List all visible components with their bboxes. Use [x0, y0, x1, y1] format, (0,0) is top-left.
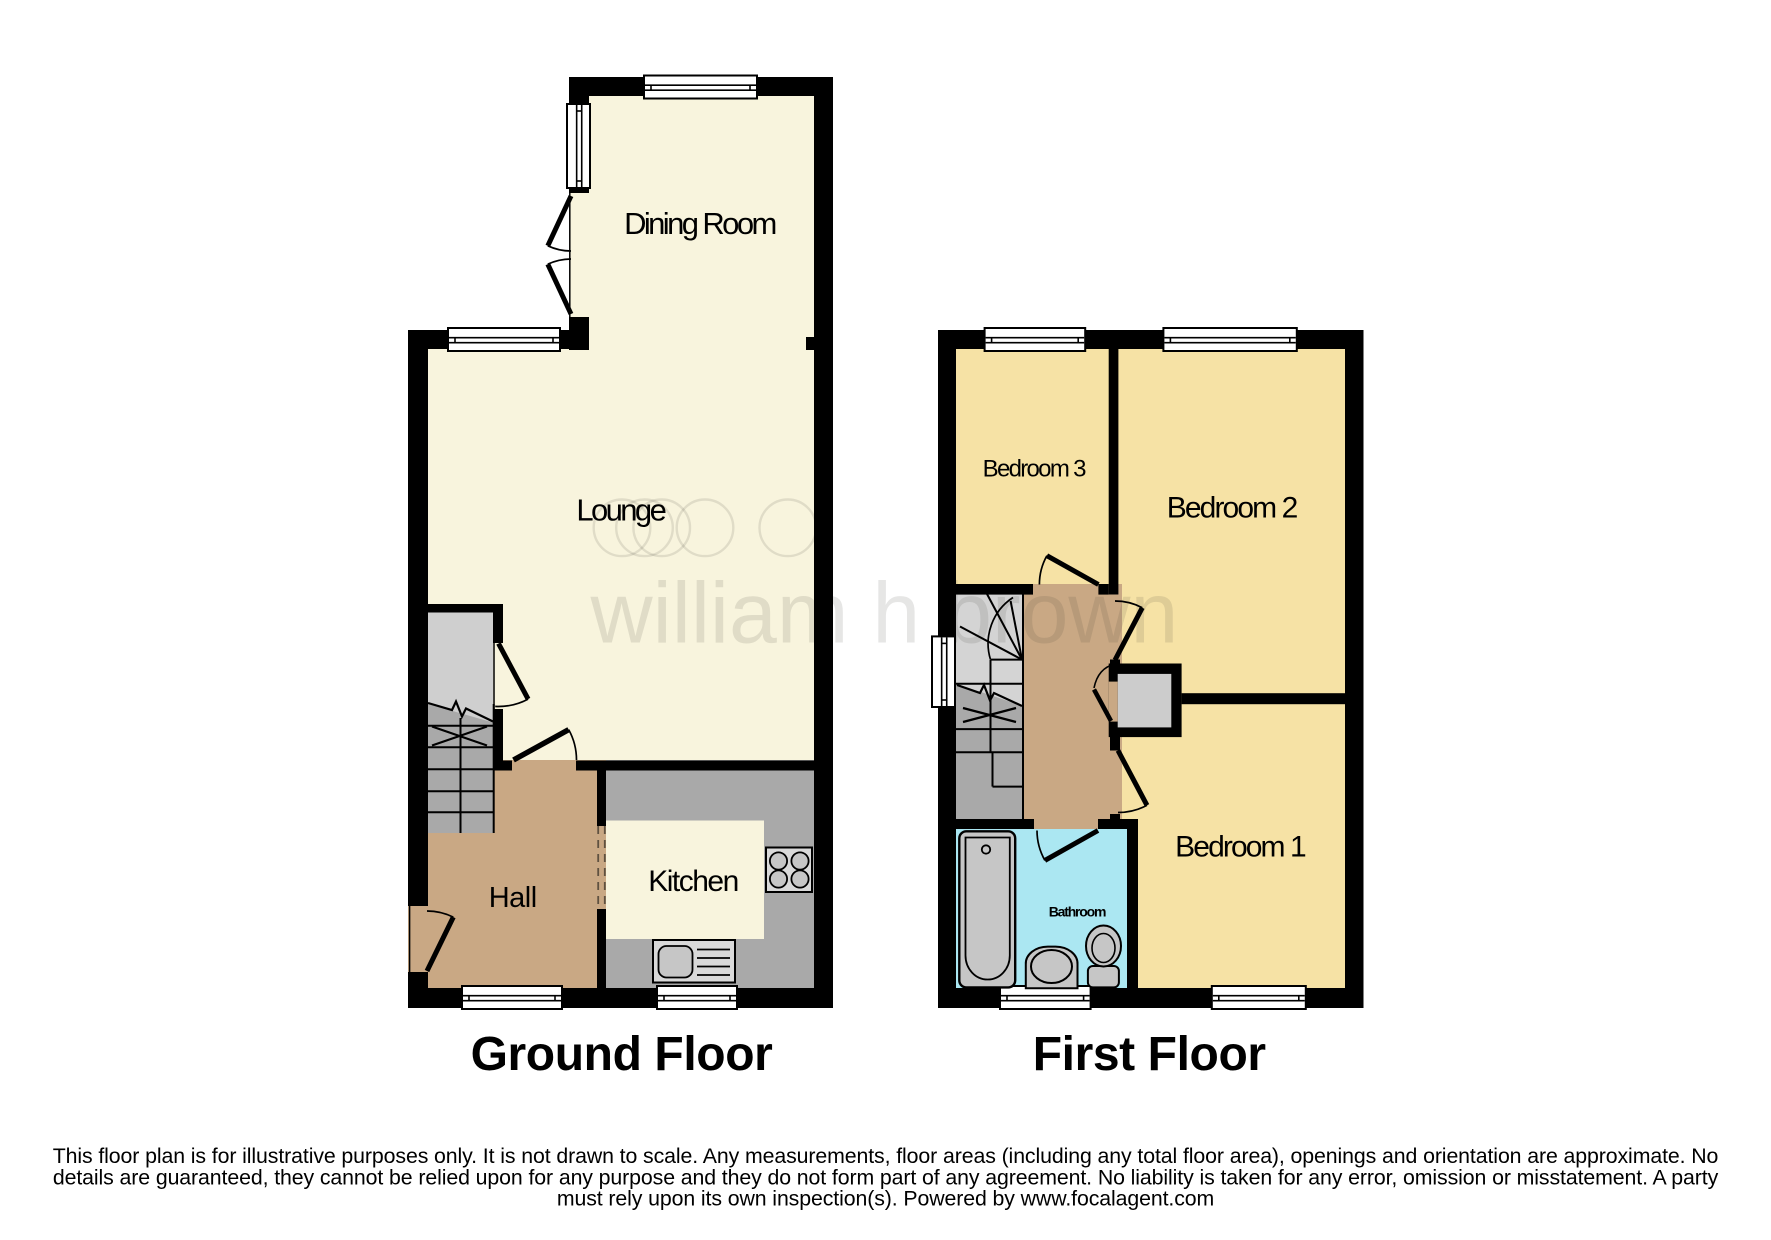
svg-text:Bedroom 1: Bedroom 1 [1175, 831, 1306, 864]
svg-text:First Floor: First Floor [1033, 1028, 1266, 1081]
svg-text:Hall: Hall [489, 882, 537, 914]
svg-text:Bathroom: Bathroom [1049, 904, 1106, 920]
svg-text:Bedroom 3: Bedroom 3 [983, 456, 1086, 483]
svg-text:Dining Room: Dining Room [624, 206, 775, 241]
svg-text:Bedroom 2: Bedroom 2 [1167, 492, 1298, 525]
svg-text:Ground Floor: Ground Floor [471, 1028, 773, 1081]
svg-text:must rely upon its own inspect: must rely upon its own inspection(s). Po… [557, 1187, 1214, 1211]
svg-text:Kitchen: Kitchen [648, 865, 738, 898]
svg-text:Lounge: Lounge [576, 493, 665, 528]
